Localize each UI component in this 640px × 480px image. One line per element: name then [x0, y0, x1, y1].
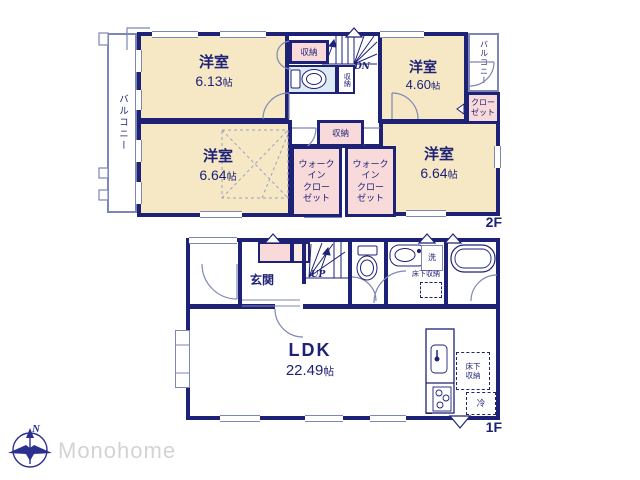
window [370, 415, 406, 422]
wall [384, 242, 388, 304]
room-2f-a-name: 洋室 [199, 54, 229, 73]
underfloor-storage-wash-box [420, 282, 442, 298]
room-2f-b-size: 4.60帖 [406, 77, 441, 93]
room-2f-c-name: 洋室 [203, 148, 233, 167]
window [305, 415, 343, 422]
window [220, 415, 260, 422]
window [200, 211, 242, 218]
shoe-cabinet-upper [292, 242, 310, 263]
window [494, 146, 501, 168]
balcony-left-label: バルコニー [116, 94, 128, 152]
window [189, 237, 237, 244]
walkin-closet-1: ウォーク イン クロー ゼット [291, 146, 342, 217]
outline-1f [186, 238, 500, 420]
wall [348, 242, 352, 304]
ldk-size: 22.49帖 [286, 362, 334, 381]
balcony-right: バルコニー [468, 33, 499, 92]
room-2f-c-label: 洋室 6.64帖 [162, 144, 274, 188]
ldk-label: LDK 22.49帖 [245, 338, 375, 382]
room-2f-c-size: 6.64帖 [199, 167, 236, 185]
wall [426, 386, 432, 414]
storage-2f-side-label: 収納 [342, 73, 351, 87]
window [135, 50, 142, 72]
underfloor-storage-wash-label: 床下収納 [402, 271, 450, 281]
room-2f-a-label: 洋室 6.13帖 [152, 50, 276, 94]
window [135, 140, 142, 162]
wall [190, 304, 275, 309]
floor-1f-label: 1F [474, 419, 502, 435]
stairs-dn-label: DN [350, 62, 374, 73]
watermark-brand: Monohome [58, 438, 218, 466]
toilet-room-2f [287, 65, 337, 94]
room-2f-b-name: 洋室 [409, 59, 437, 77]
floor-2f-label: 2F [474, 214, 502, 230]
ldk-name: LDK [289, 339, 332, 362]
closet-2f: クロー ゼット [466, 92, 500, 124]
room-2f-a-size: 6.13帖 [195, 73, 232, 91]
window [135, 90, 142, 110]
window [380, 31, 424, 38]
room-2f-b-label: 洋室 4.60帖 [384, 54, 462, 98]
laundry-space: 洗 [421, 245, 443, 271]
entrance-label: 玄関 [232, 273, 292, 287]
room-2f-d-label: 洋室 6.64帖 [384, 142, 494, 186]
window [220, 31, 266, 38]
balcony-left: バルコニー [107, 33, 137, 213]
wall [303, 304, 496, 309]
window [135, 182, 142, 204]
shoe-cabinet [258, 242, 292, 263]
north-compass-icon: N [8, 423, 52, 467]
room-2f-d-size: 6.64帖 [420, 165, 457, 183]
storage-2f-mid: 収納 [317, 120, 364, 147]
storage-2f-top: 収納 [289, 40, 329, 64]
room-2f-d-name: 洋室 [424, 146, 454, 165]
window [152, 31, 198, 38]
underfloor-storage-ldk: 床下 収納 [456, 352, 490, 390]
bay-window [175, 330, 190, 388]
north-label: N [31, 423, 41, 435]
window [406, 210, 446, 217]
fridge-space: 冷 [466, 392, 496, 415]
floorplan-canvas: バルコニー バルコニー クロー ゼット 収納 収納 収納 ウォーク イン クロー… [0, 0, 640, 480]
balcony-right-label: バルコニー [479, 40, 489, 85]
stairs-up-label: UP [306, 270, 330, 281]
